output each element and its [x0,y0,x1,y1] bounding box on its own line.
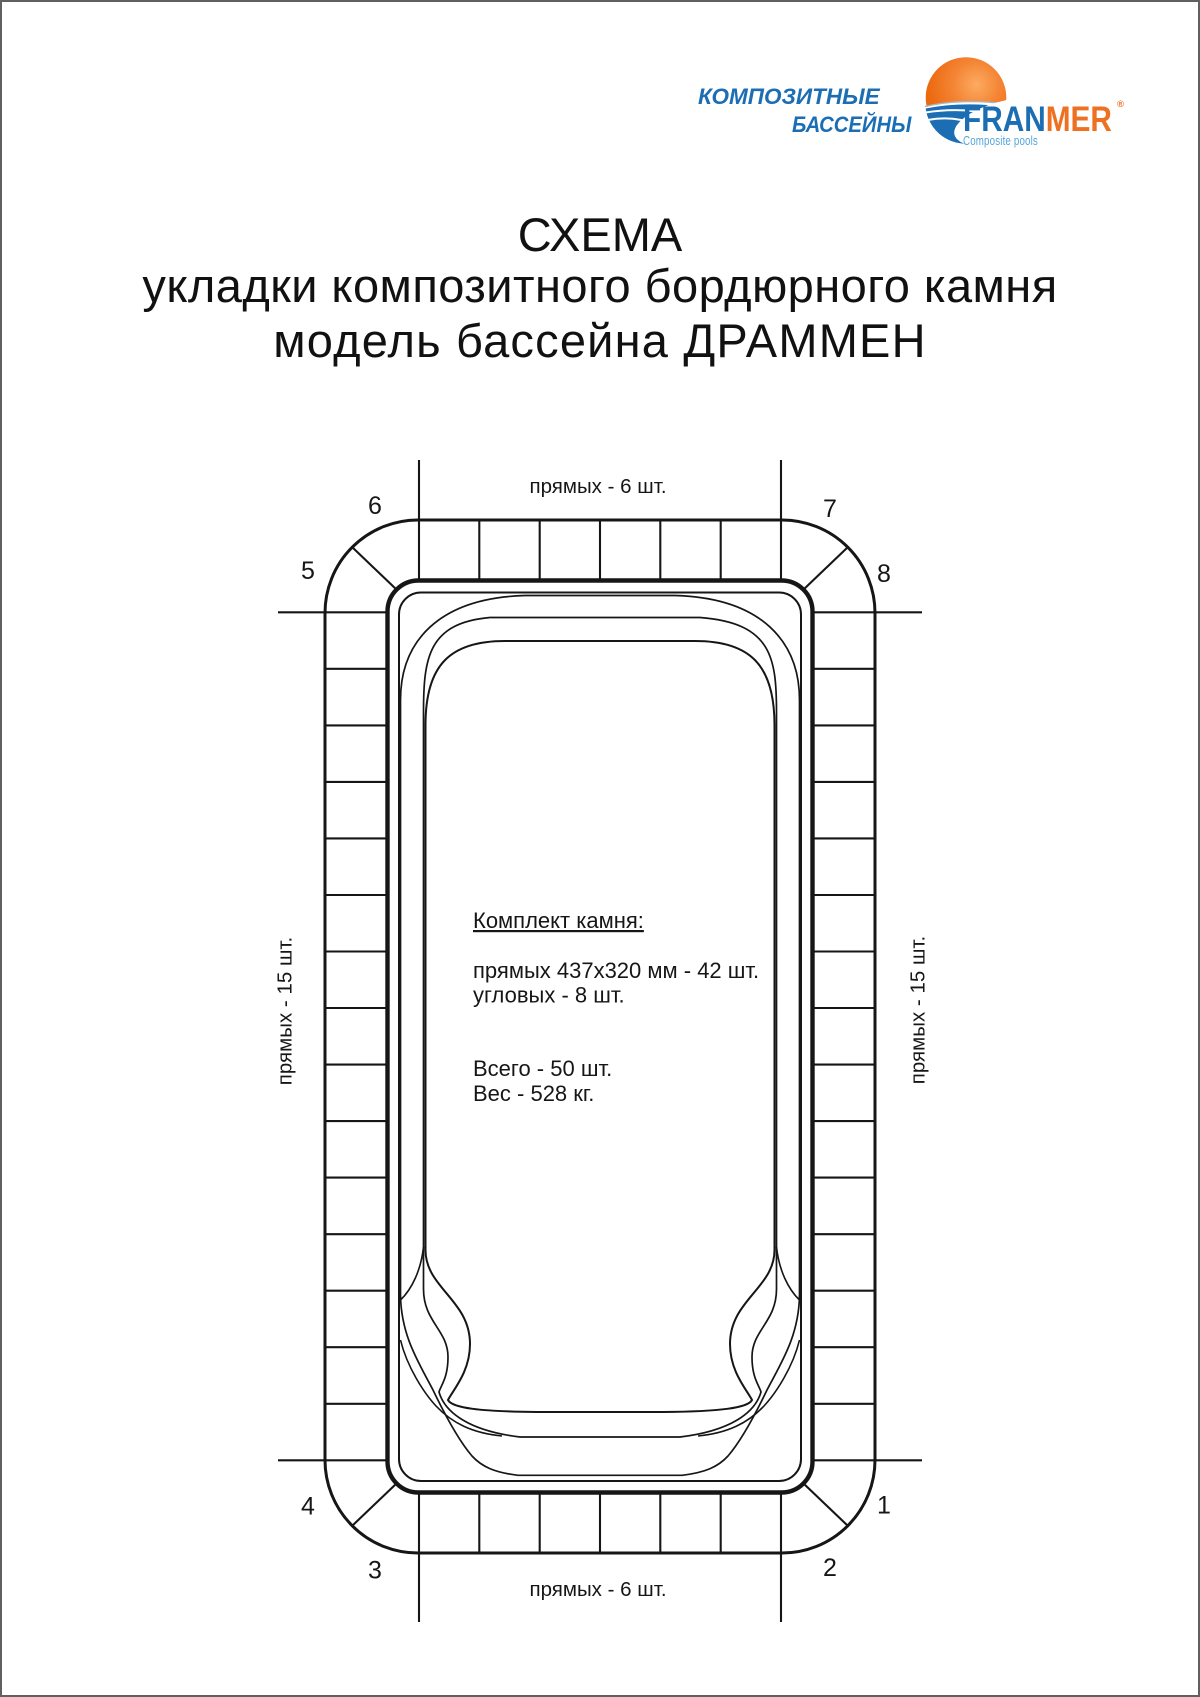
svg-text:Комплект камня:: Комплект камня: [473,908,644,933]
svg-text:прямых - 15 шт.: прямых - 15 шт. [274,937,297,1085]
svg-text:Вес - 528 кг.: Вес - 528 кг. [473,1081,594,1106]
svg-text:прямых - 6 шт.: прямых - 6 шт. [529,1578,666,1601]
svg-text:прямых - 6 шт.: прямых - 6 шт. [529,475,666,498]
svg-text:8: 8 [877,560,891,588]
svg-text:прямых 437х320 мм - 42 шт.: прямых 437х320 мм - 42 шт. [473,958,759,983]
svg-text:прямых - 15 шт.: прямых - 15 шт. [907,936,930,1084]
svg-text:6: 6 [368,492,382,520]
svg-text:угловых - 8 шт.: угловых - 8 шт. [473,983,625,1008]
svg-text:7: 7 [823,495,837,523]
svg-text:5: 5 [301,557,315,585]
svg-text:4: 4 [301,1493,315,1521]
svg-text:1: 1 [877,1492,891,1520]
svg-text:2: 2 [823,1554,837,1582]
svg-text:Всего - 50 шт.: Всего - 50 шт. [473,1056,612,1081]
svg-text:3: 3 [368,1557,382,1585]
